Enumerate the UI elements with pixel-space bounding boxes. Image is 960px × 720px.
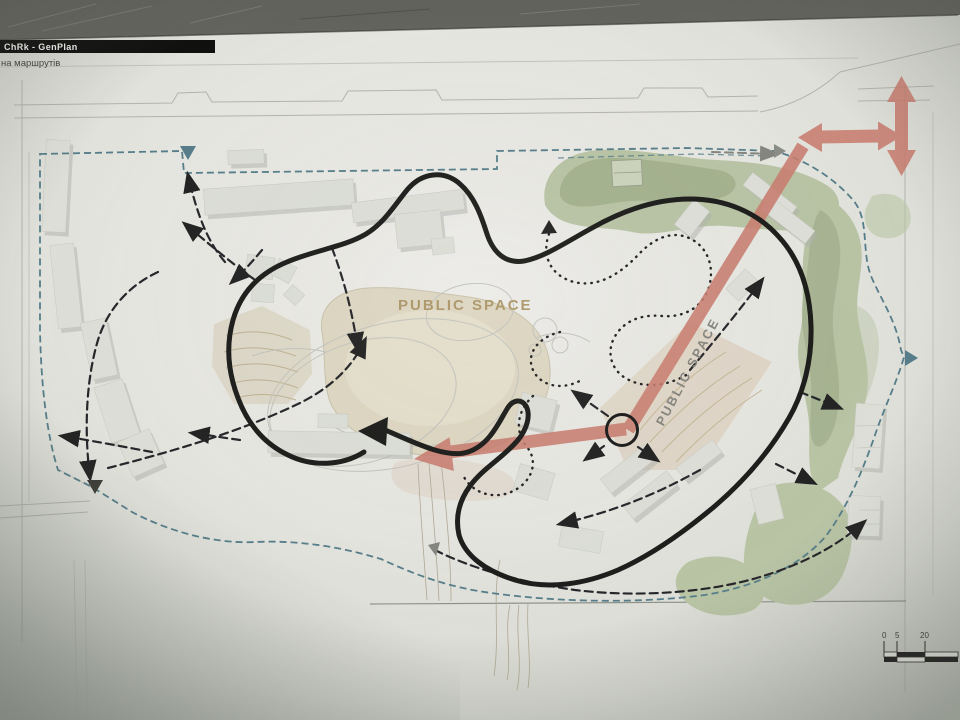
photographed-site-plan: PUBLIC SPACE PUBLIC SPACE ChRk - GenPlan… [0, 0, 960, 720]
genplan-drawing: PUBLIC SPACE PUBLIC SPACE ChRk - GenPlan… [0, 0, 960, 720]
corner-shadow [0, 380, 460, 720]
